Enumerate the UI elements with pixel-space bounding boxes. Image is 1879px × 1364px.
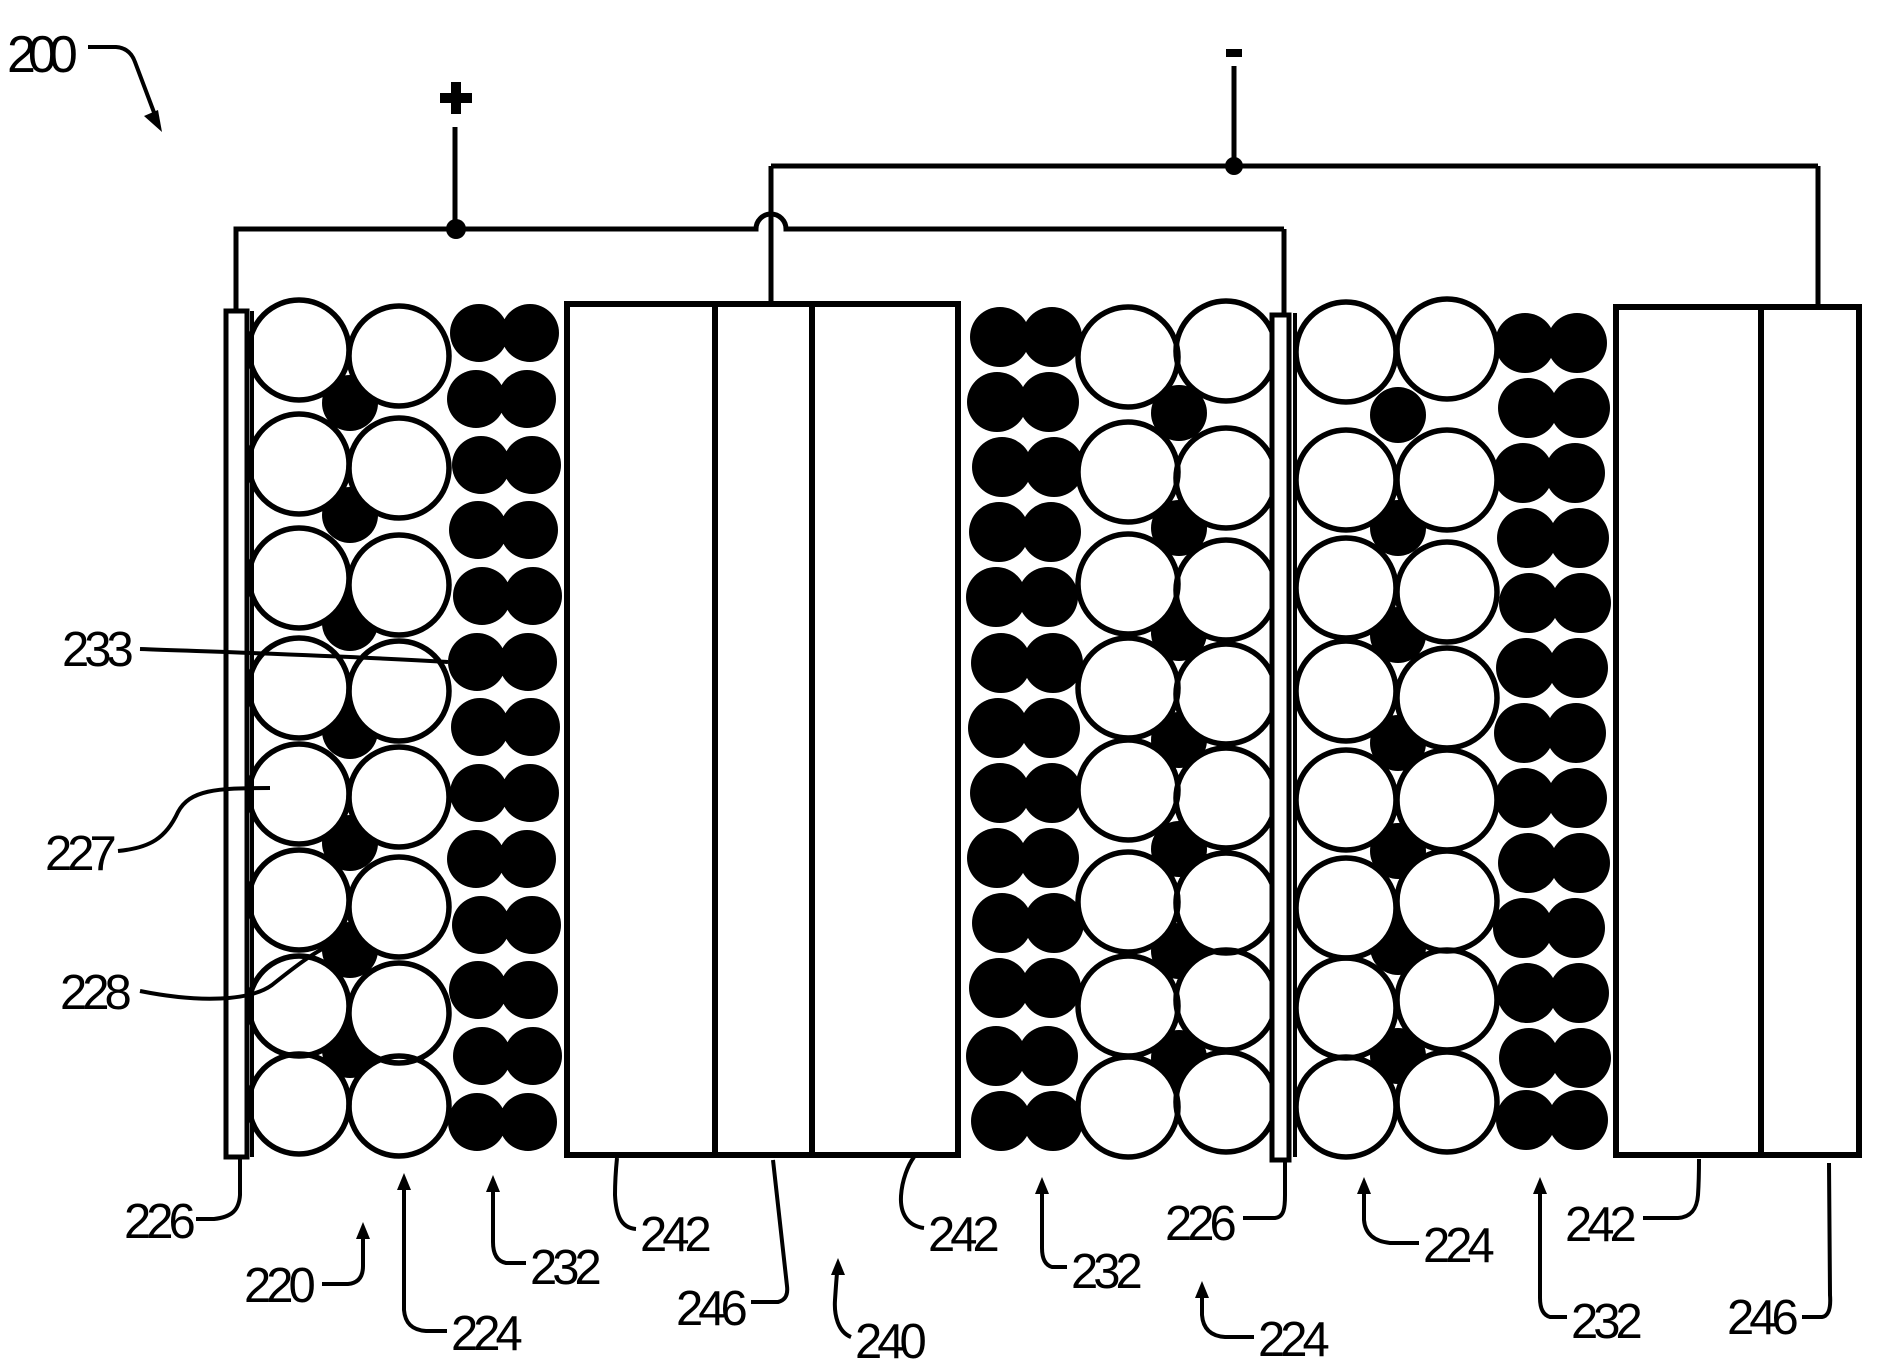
svg-text:226: 226 [1165,1197,1236,1251]
svg-text:232: 232 [530,1241,600,1295]
svg-text:224: 224 [1258,1313,1329,1359]
svg-text:232: 232 [1571,1295,1641,1349]
svg-text:232: 232 [1071,1245,1141,1299]
svg-text:242: 242 [640,1208,710,1262]
svg-text:224: 224 [451,1307,522,1359]
svg-text:228: 228 [60,966,131,1020]
svg-text:242: 242 [928,1208,998,1262]
svg-text:246: 246 [676,1282,747,1336]
svg-text:227: 227 [45,827,115,881]
svg-text:246: 246 [1727,1291,1798,1345]
svg-text:224: 224 [1423,1219,1494,1273]
svg-text:220: 220 [244,1259,315,1313]
svg-text:226: 226 [124,1195,195,1249]
svg-text:233: 233 [62,623,133,677]
svg-text:200: 200 [7,26,76,84]
svg-text:240: 240 [855,1315,926,1359]
svg-text:242: 242 [1565,1198,1635,1252]
